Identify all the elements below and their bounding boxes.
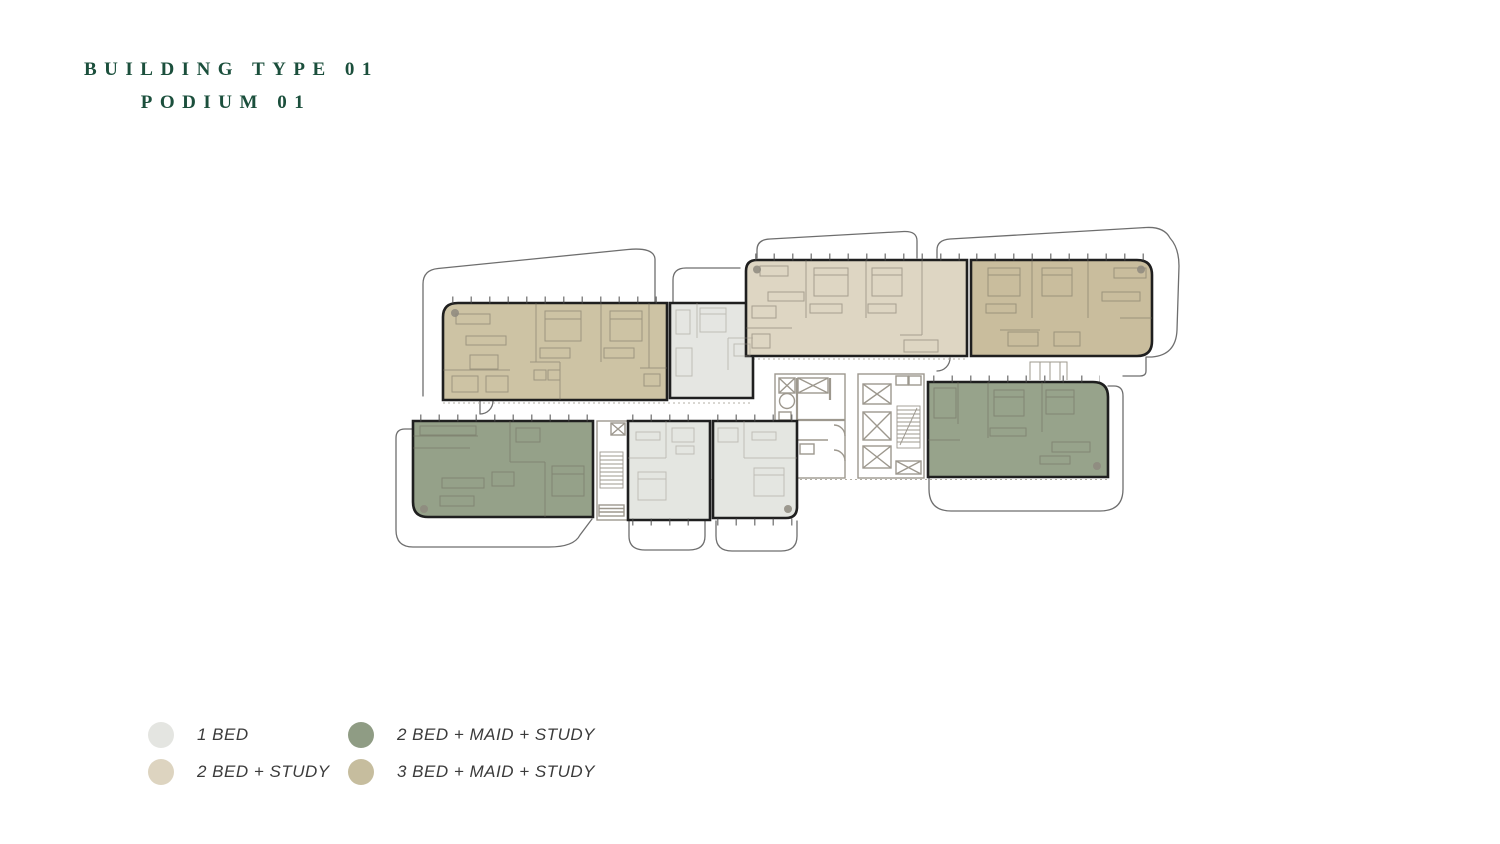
unit-1bed-bottom-1 (628, 421, 710, 520)
unit-3bed-maid-study-top-right (971, 260, 1152, 356)
legend-swatch-3bed-maid-study (348, 759, 374, 785)
legend-swatch-2bed-maid-study (348, 722, 374, 748)
stair-shaft-mid (597, 421, 628, 520)
floor-plan (0, 0, 1500, 844)
unit-2bed-maid-study-right (928, 382, 1108, 477)
legend-column-1: 1 BED 2 BED + STUDY (148, 722, 330, 796)
legend-label-3bed-maid-study: 3 BED + MAID + STUDY (397, 762, 595, 782)
legend-item-3bed-maid-study: 3 BED + MAID + STUDY (348, 759, 595, 785)
unit-3bed-maid-study-top-left (443, 303, 667, 400)
legend-label-2bed-study: 2 BED + STUDY (197, 762, 330, 782)
page: BUILDING TYPE 01 PODIUM 01 (0, 0, 1500, 844)
legend-item-2bed-maid-study: 2 BED + MAID + STUDY (348, 722, 595, 748)
legend-column-2: 2 BED + MAID + STUDY 3 BED + MAID + STUD… (348, 722, 595, 796)
unit-1bed-top (670, 303, 753, 398)
legend-swatch-2bed-study (148, 759, 174, 785)
unit-2bed-study-top-middle (746, 260, 967, 356)
legend-label-1bed: 1 BED (197, 725, 249, 745)
entry-steps (1030, 362, 1067, 380)
legend-swatch-1bed (148, 722, 174, 748)
legend-label-2bed-maid-study: 2 BED + MAID + STUDY (397, 725, 595, 745)
legend-item-1bed: 1 BED (148, 722, 330, 748)
service-core-right (858, 374, 924, 478)
legend-item-2bed-study: 2 BED + STUDY (148, 759, 330, 785)
